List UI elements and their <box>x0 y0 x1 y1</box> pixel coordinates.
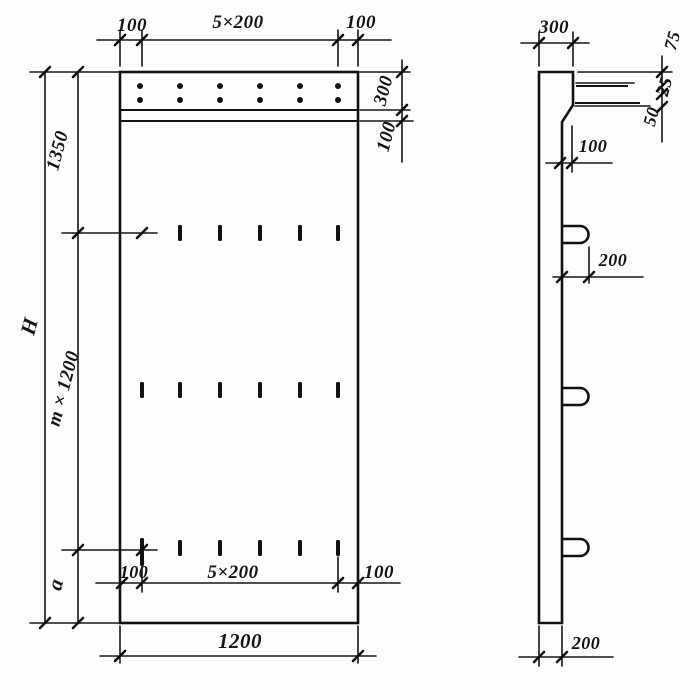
dim-thickness-200: 200 <box>571 633 601 653</box>
dim-hook-200: 200 <box>598 250 628 270</box>
side-bottom-dimension: 200 <box>519 626 613 666</box>
dim-a: a <box>42 576 68 593</box>
dim-overall-H: H <box>15 315 43 339</box>
side-ledge-dimension: 100 <box>546 126 612 172</box>
dim-ledge-100: 100 <box>579 136 608 156</box>
front-right-dimension: 300 100 <box>360 60 413 162</box>
front-bottom-dimension: 1200 <box>100 626 376 663</box>
dim-chain-25: 25 <box>652 75 676 99</box>
panel-outline <box>120 72 358 623</box>
hook-3 <box>562 539 589 556</box>
side-top-dimension: 300 <box>521 17 589 66</box>
lifting-hooks <box>562 226 589 556</box>
front-view: 100 5×200 100 300 100 <box>15 12 413 663</box>
dim-1200: 1200 <box>218 629 262 653</box>
side-outline <box>539 72 573 623</box>
slot-row-1 <box>178 225 340 241</box>
anchor-dots <box>137 83 341 103</box>
side-hook-dimension: 200 <box>553 247 643 283</box>
dim-chain-75: 75 <box>660 29 684 53</box>
hook-1 <box>562 226 589 243</box>
dim-bottom-inner-left: 100 <box>120 562 149 582</box>
dim-1350: 1350 <box>42 129 73 173</box>
slot-row-2 <box>140 382 340 398</box>
front-bottom-inner-dimension: 100 5×200 100 <box>96 557 400 592</box>
front-top-dimension: 100 5×200 100 <box>97 12 391 66</box>
dim-band-300: 300 <box>369 73 397 108</box>
shelf-lines <box>575 83 650 106</box>
drawing-sheet: 100 5×200 100 300 100 <box>0 0 700 700</box>
dim-top-center: 5×200 <box>212 12 263 33</box>
side-view: 300 75 25 50 100 <box>519 17 684 666</box>
dim-top-left: 100 <box>117 15 147 36</box>
panel-technical-drawing: 100 5×200 100 300 100 <box>0 0 700 700</box>
dim-side-300: 300 <box>538 17 569 38</box>
front-left-dimension: H 1350 m × 1200 a <box>15 67 157 628</box>
hook-2 <box>562 388 589 405</box>
dim-bottom-inner-center: 5×200 <box>207 562 258 583</box>
dim-top-right: 100 <box>346 12 376 33</box>
dim-bottom-inner-right: 100 <box>364 562 394 583</box>
dim-strip-100: 100 <box>373 119 401 153</box>
